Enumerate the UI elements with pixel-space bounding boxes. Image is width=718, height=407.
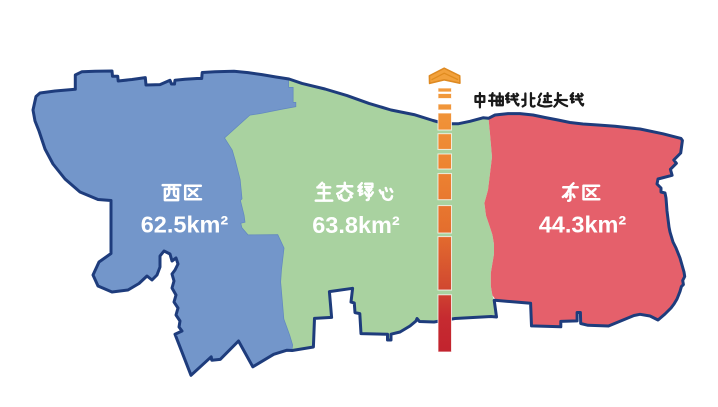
svg-text:62.5km²: 62.5km² [141,212,229,238]
svg-text:63.8km²: 63.8km² [312,212,400,238]
svg-text:44.3km²: 44.3km² [539,212,627,238]
